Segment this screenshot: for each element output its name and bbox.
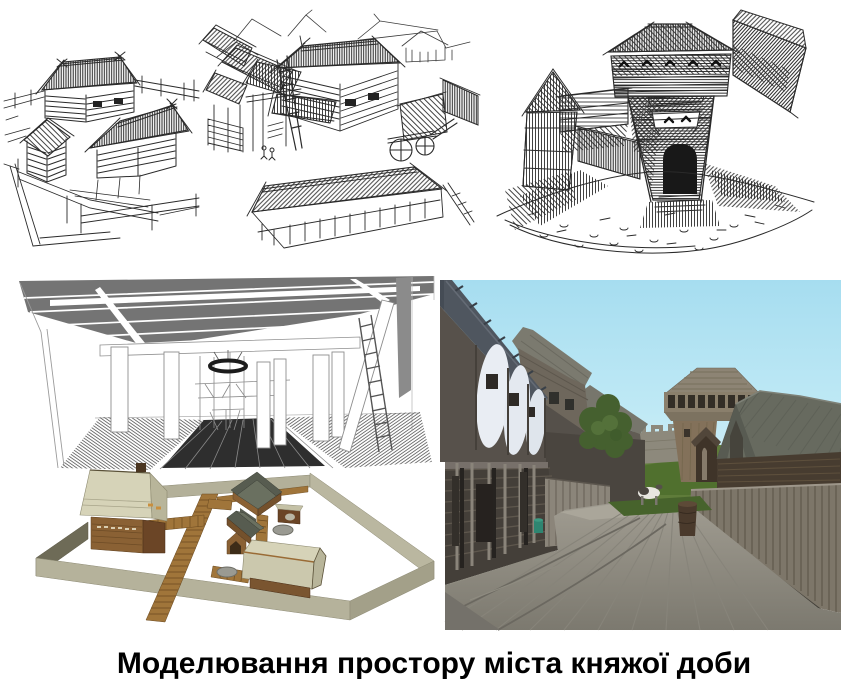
svg-text:Моделювання простору міста кня: Моделювання простору міста княжої доби — [117, 647, 751, 680]
